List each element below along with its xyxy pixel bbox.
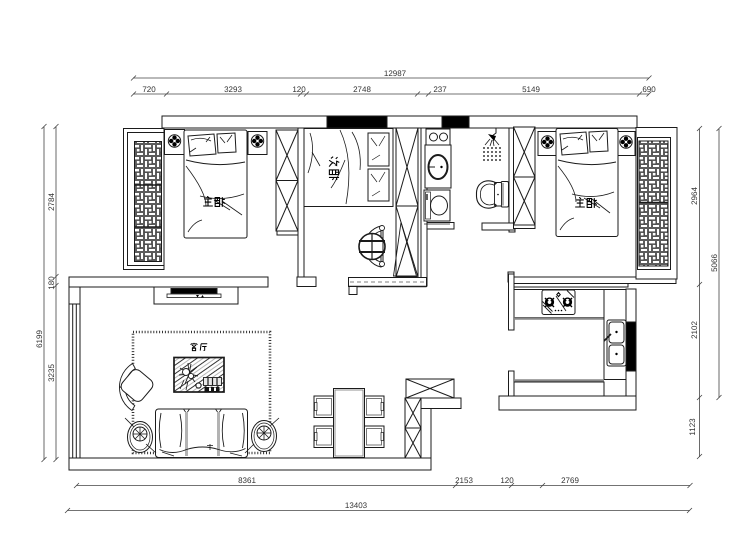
svg-text:2748: 2748	[353, 85, 371, 94]
svg-text:8361: 8361	[238, 476, 256, 485]
svg-text:720: 720	[142, 85, 156, 94]
svg-text:2102: 2102	[690, 321, 699, 339]
svg-text:690: 690	[642, 85, 656, 94]
svg-text:120: 120	[292, 85, 306, 94]
svg-text:2964: 2964	[690, 187, 699, 205]
svg-text:120: 120	[500, 476, 514, 485]
svg-text:2784: 2784	[47, 193, 56, 211]
svg-text:2153: 2153	[455, 476, 473, 485]
svg-text:3235: 3235	[47, 364, 56, 382]
svg-text:1123: 1123	[688, 418, 697, 436]
svg-text:237: 237	[433, 85, 447, 94]
svg-text:3293: 3293	[224, 85, 242, 94]
svg-text:180: 180	[47, 276, 56, 290]
svg-text:5149: 5149	[522, 85, 540, 94]
svg-text:6199: 6199	[35, 330, 44, 348]
svg-text:13403: 13403	[345, 501, 368, 510]
svg-text:12987: 12987	[384, 69, 407, 78]
svg-text:5066: 5066	[710, 254, 719, 272]
svg-text:2769: 2769	[561, 476, 579, 485]
